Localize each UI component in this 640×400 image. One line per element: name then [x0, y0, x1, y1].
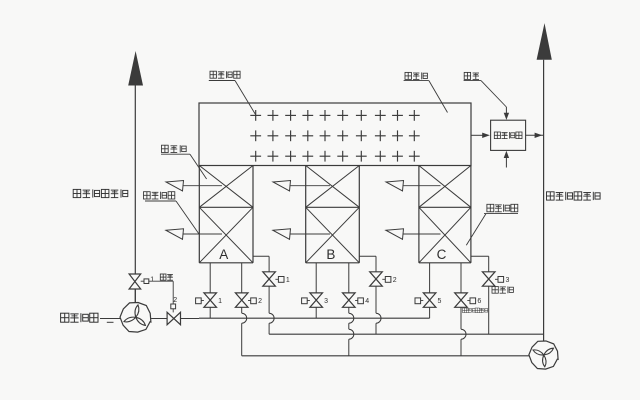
- svg-text:1: 1: [286, 277, 290, 284]
- svg-text:3: 3: [506, 277, 510, 284]
- svg-text:3: 3: [324, 298, 328, 305]
- svg-text:2: 2: [393, 277, 397, 284]
- svg-text:A: A: [219, 247, 228, 262]
- svg-text:2: 2: [173, 297, 177, 304]
- svg-text:5: 5: [438, 298, 442, 305]
- svg-text:2: 2: [258, 298, 262, 305]
- svg-text:6: 6: [477, 298, 481, 305]
- svg-text:4: 4: [365, 298, 369, 305]
- svg-text:1: 1: [150, 276, 154, 283]
- svg-text:1: 1: [218, 298, 222, 305]
- svg-text:B: B: [326, 247, 335, 262]
- svg-text:C: C: [437, 247, 447, 262]
